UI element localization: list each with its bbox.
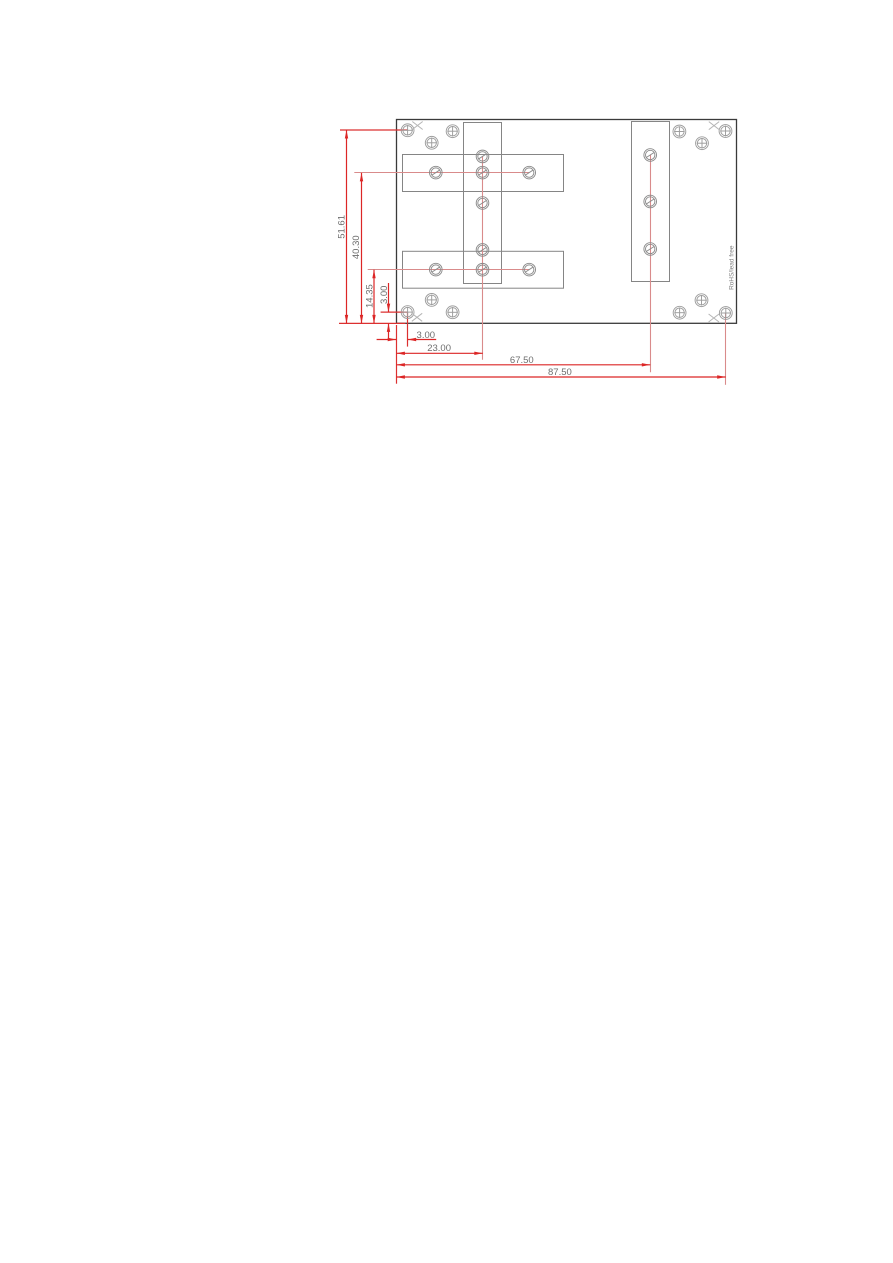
svg-text:51.61: 51.61 <box>337 215 348 239</box>
svg-text:3.00: 3.00 <box>417 330 436 341</box>
svg-text:23.00: 23.00 <box>427 343 451 354</box>
svg-text:RoHS/lead free: RoHS/lead free <box>728 245 735 290</box>
svg-text:67.50: 67.50 <box>510 355 534 366</box>
svg-text:3.00: 3.00 <box>379 286 390 305</box>
svg-text:40.30: 40.30 <box>351 235 362 259</box>
svg-text:87.50: 87.50 <box>548 367 572 378</box>
svg-text:14.35: 14.35 <box>364 284 375 308</box>
